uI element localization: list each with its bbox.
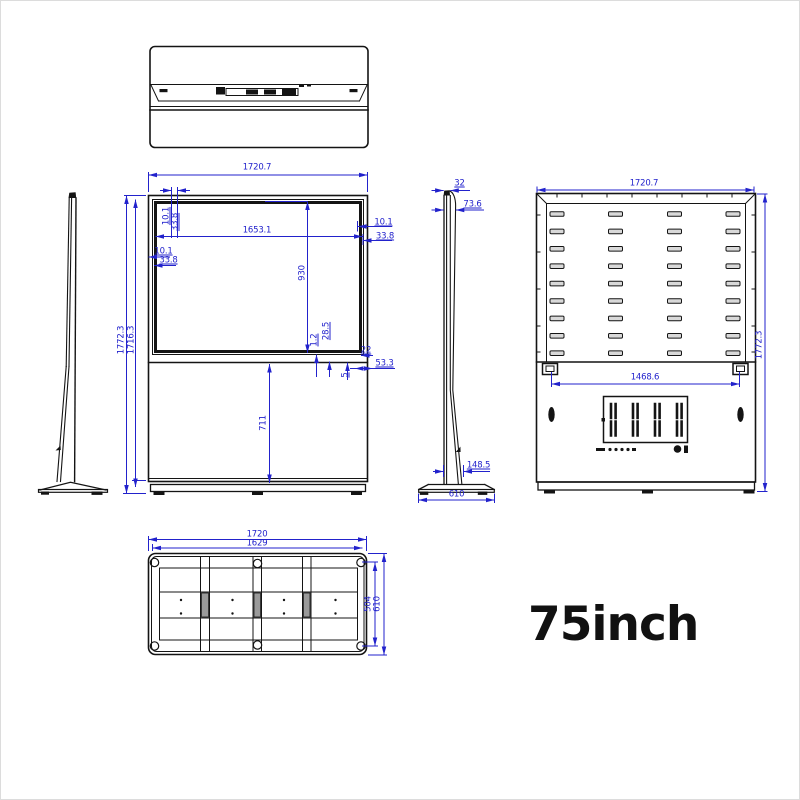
dim-front-corner-b: 53.3 [375, 360, 393, 369]
dim-front-corner-c: 5 [342, 372, 351, 377]
dim-side-panel-thickness: 32 [454, 180, 464, 189]
technical-drawing-page: 1720.7 1772.3 1716.3 10.1 33.8 1653.1 10… [0, 0, 800, 800]
dim-front-top-offset-large: 33.8 [172, 213, 181, 231]
dim-front-lower-panel-height: 711 [260, 415, 269, 431]
back-button-strip [596, 448, 636, 451]
side-view-center [419, 190, 495, 495]
dim-bottom-inner-width: 1629 [247, 539, 268, 548]
back-handle-left [548, 407, 554, 422]
dim-back-overall-width: 1720.7 [630, 179, 659, 188]
dim-front-seam-gap: 1.2 [310, 334, 319, 347]
dim-back-bracket-span: 1468.6 [631, 374, 660, 383]
side-view-left [39, 192, 108, 495]
dim-side-column-depth: 148.5 [467, 462, 490, 471]
dim-back-overall-height: 1772.3 [756, 331, 765, 360]
back-vent-slots [550, 212, 740, 356]
dim-front-left-offset-large: 33.8 [159, 257, 177, 266]
back-power-inlet [674, 445, 688, 453]
back-handle-right [737, 407, 743, 422]
back-port-panel [602, 397, 688, 443]
dim-bottom-overall-depth: 610 [373, 596, 382, 612]
dim-front-screen-height: 930 [298, 265, 307, 281]
dim-front-seam-offset: 28.5 [323, 322, 332, 340]
front-screen-outline [153, 200, 364, 355]
dim-front-body-height: 1716.3 [128, 326, 137, 355]
dim-front-screen-width: 1653.1 [243, 227, 272, 236]
front-view [149, 196, 368, 496]
top-view [150, 47, 368, 148]
dim-side-base-depth: 610 [449, 491, 465, 500]
dim-front-overall-width: 1720.7 [243, 164, 272, 173]
dim-side-head-depth: 73.6 [463, 201, 481, 210]
back-view [537, 194, 756, 494]
dim-front-corner-a: 22 [361, 347, 371, 356]
side-center-top-cap [444, 190, 450, 195]
dim-front-overall-height: 1772.3 [118, 326, 127, 355]
drawing-linework [0, 0, 800, 800]
dim-front-right-offset-large: 33.8 [376, 232, 394, 241]
bottom-view [149, 554, 367, 655]
side-left-top-cap [69, 192, 77, 198]
dim-front-right-offset-small: 10.1 [374, 219, 392, 228]
size-title: 75inch [528, 597, 698, 652]
top-connector-block [216, 87, 225, 95]
